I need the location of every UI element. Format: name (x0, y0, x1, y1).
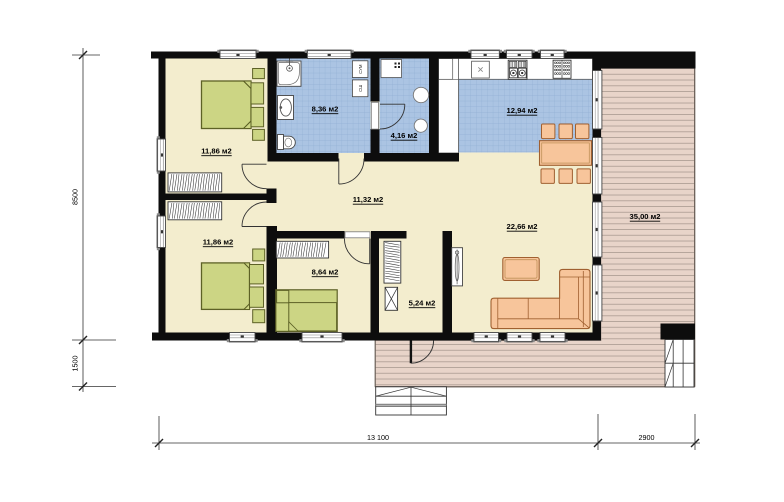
svg-text:22,66 м2: 22,66 м2 (507, 222, 538, 231)
svg-text:2900: 2900 (639, 433, 655, 442)
svg-text:11,32 м2: 11,32 м2 (353, 195, 384, 204)
svg-text:11,86 м2: 11,86 м2 (203, 238, 234, 247)
svg-text:5,24 м2: 5,24 м2 (409, 299, 436, 308)
svg-text:СУМ: СУМ (358, 64, 363, 74)
svg-text:8,64 м2: 8,64 м2 (312, 268, 339, 277)
svg-text:12,94 м2: 12,94 м2 (507, 106, 538, 115)
svg-text:СШ: СШ (358, 85, 363, 92)
svg-text:8,36 м2: 8,36 м2 (312, 105, 339, 114)
svg-text:13 100: 13 100 (367, 433, 389, 442)
svg-text:11,86 м2: 11,86 м2 (201, 147, 232, 156)
svg-text:4,16 м2: 4,16 м2 (391, 131, 418, 140)
svg-text:1500: 1500 (71, 356, 80, 372)
svg-text:8500: 8500 (71, 189, 80, 205)
svg-text:35,00 м2: 35,00 м2 (630, 212, 661, 221)
